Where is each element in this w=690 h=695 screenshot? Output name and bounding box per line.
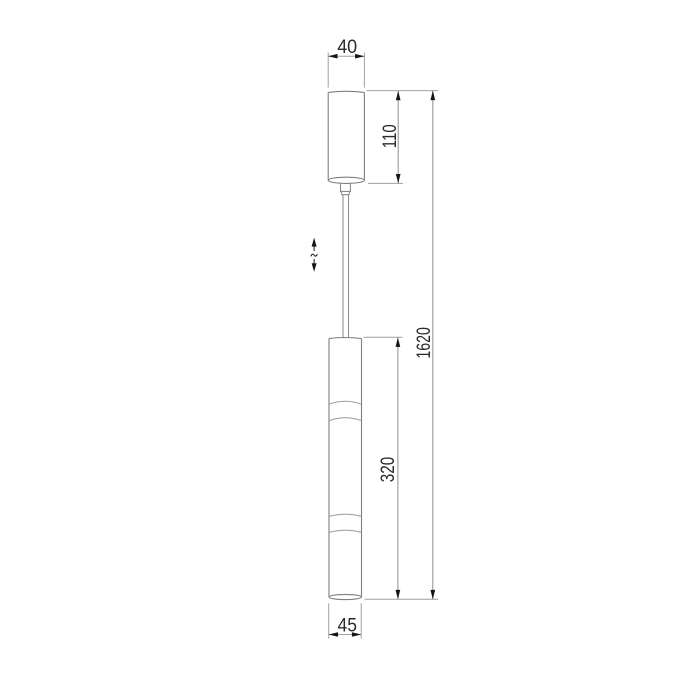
svg-text:1620: 1620 — [414, 327, 435, 359]
svg-text:320: 320 — [378, 457, 399, 483]
svg-text:110: 110 — [380, 124, 401, 148]
svg-text:40: 40 — [337, 37, 357, 58]
svg-text:45: 45 — [338, 616, 358, 637]
